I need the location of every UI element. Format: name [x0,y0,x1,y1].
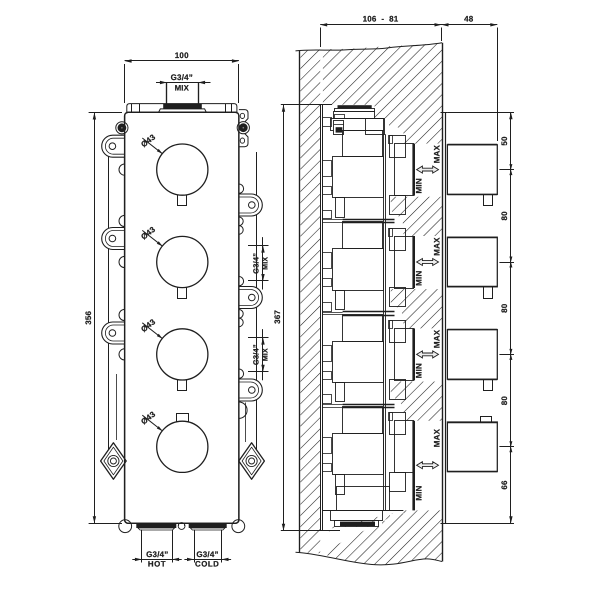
svg-text:48: 48 [464,15,474,24]
svg-text:MAX: MAX [433,428,442,447]
svg-text:MAX: MAX [433,329,442,348]
svg-text:MIX: MIX [263,348,270,361]
svg-text:MAX: MAX [433,237,442,256]
svg-text:G3/4”: G3/4” [171,73,193,82]
svg-text:100: 100 [175,51,189,60]
svg-text:G3/4”: G3/4” [252,253,261,274]
svg-text:MIN: MIN [414,363,423,378]
svg-text:MIN: MIN [414,271,423,286]
svg-text:MIN: MIN [414,485,423,500]
svg-text:80: 80 [500,396,509,406]
svg-text:MAX: MAX [433,144,442,163]
svg-text:80: 80 [500,211,509,221]
svg-text:367: 367 [273,310,282,324]
svg-text:G3/4”: G3/4” [252,344,261,365]
svg-text:MIN: MIN [414,178,423,193]
svg-text:50: 50 [500,136,509,146]
svg-text:80: 80 [500,303,509,313]
svg-text:G3/4”: G3/4” [146,550,168,559]
svg-text:HOT: HOT [148,560,166,569]
svg-text:106 - 81: 106 - 81 [363,15,399,24]
svg-text:G3/4”: G3/4” [196,550,218,559]
svg-text:356: 356 [84,310,93,324]
svg-text:MIX: MIX [263,257,270,270]
svg-text:MIX: MIX [175,83,190,92]
svg-text:COLD: COLD [195,560,219,569]
svg-text:66: 66 [500,480,509,490]
